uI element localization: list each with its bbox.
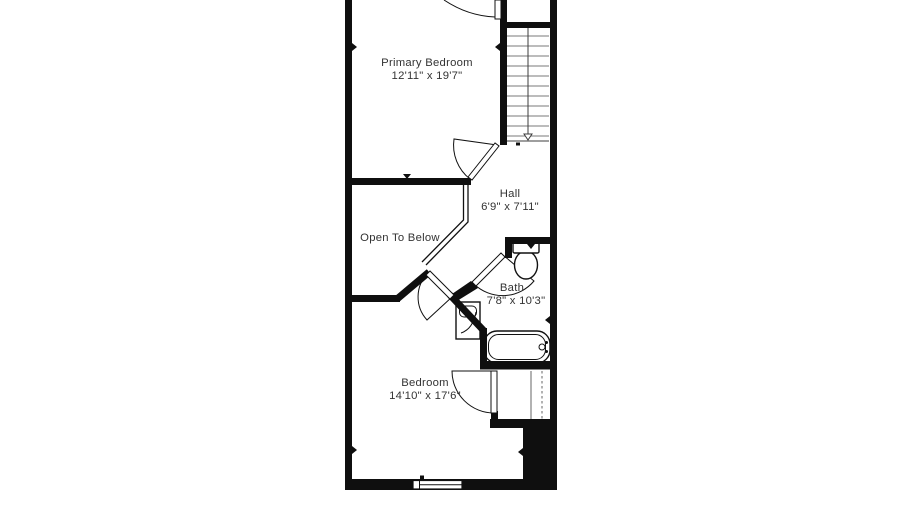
room-label-hall: Hall [500, 188, 520, 200]
window-icon [413, 476, 462, 490]
bathtub-icon [484, 331, 550, 363]
toilet-icon [513, 242, 539, 279]
top-door-arc-icon [444, 0, 495, 17]
wall-block-bottom-right [523, 423, 557, 483]
wall-bedroom-stairs [500, 0, 507, 145]
wall-below-tub [480, 361, 557, 370]
room-dimensions-hall: 6'9" x 7'11" [481, 201, 539, 213]
room-label-bedroom: Bedroom [401, 377, 449, 389]
wall-bath-top [505, 237, 557, 244]
wall-right [550, 0, 557, 490]
floor-plan-canvas: Primary Bedroom 12'11" x 19'7" Hall 6'9"… [0, 0, 900, 529]
room-dimensions-primary-bedroom: 12'11" x 19'7" [392, 70, 463, 82]
staircase-icon [507, 28, 549, 146]
room-label-bath: Bath [500, 282, 524, 294]
stairs-down-arrow-icon [524, 134, 532, 140]
room-dimensions-bedroom: 14'10" x 17'6" [389, 390, 461, 402]
wall-bedroom-open-below [345, 178, 471, 185]
room-label-primary-bedroom: Primary Bedroom [381, 57, 473, 69]
closet-door-leaf-icon [491, 371, 497, 413]
top-door-leaf-icon [495, 0, 501, 19]
wall-left [345, 0, 352, 490]
room-label-open-to-below: Open To Below [360, 232, 440, 244]
wall-open-below-bedroom [345, 295, 400, 302]
room-dimensions-bath: 7'8" x 10'3" [487, 295, 546, 307]
wall-bath-stub [505, 237, 512, 258]
closet-icon [531, 371, 542, 419]
wall-stairs-top [500, 22, 557, 28]
wall-vanity-tub [480, 328, 487, 364]
floor-plan-page: Primary Bedroom 12'11" x 19'7" Hall 6'9"… [0, 0, 900, 529]
railing-open-to-below [422, 185, 468, 265]
